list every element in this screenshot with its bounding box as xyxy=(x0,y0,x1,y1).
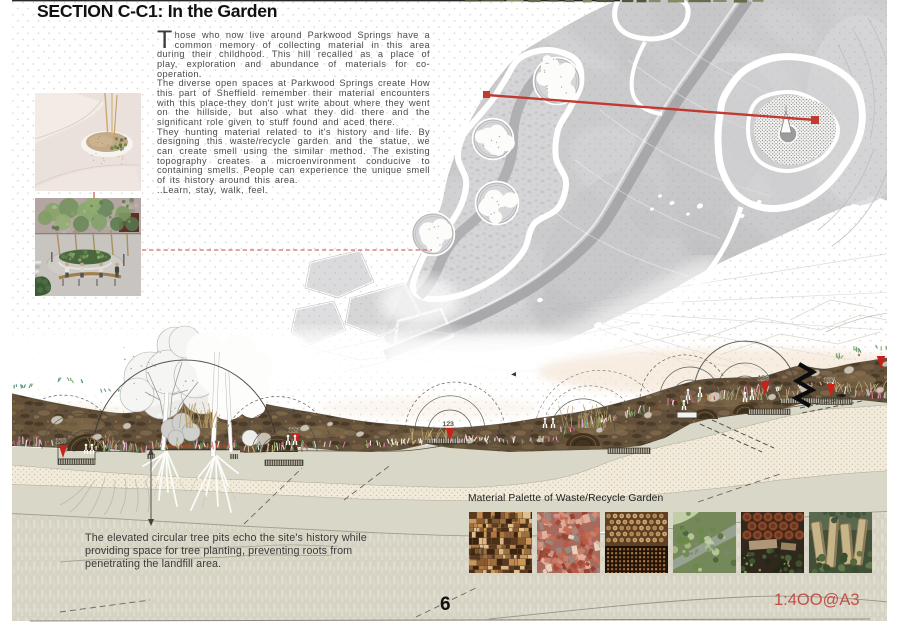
svg-text:118: 118 xyxy=(56,438,67,445)
svg-text:127: 127 xyxy=(824,377,836,384)
svg-text:126: 126 xyxy=(758,375,770,382)
svg-text:123: 123 xyxy=(443,421,455,428)
svg-text:117: 117 xyxy=(289,427,300,434)
